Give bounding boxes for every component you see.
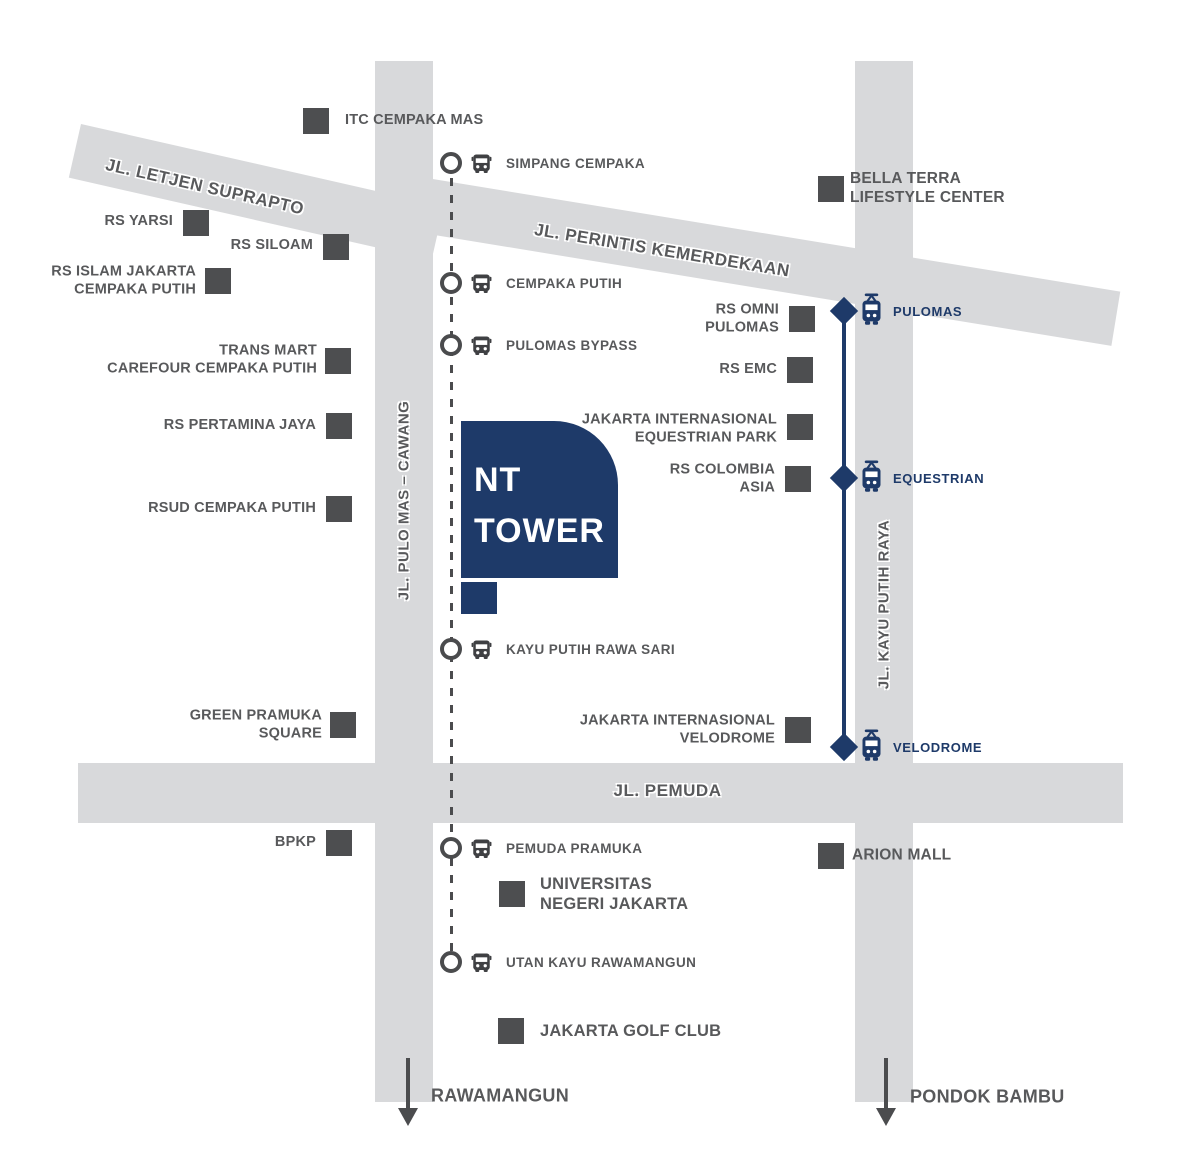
bus-stop-kayu-putih-rawa-sari: KAYU PUTIH RAWA SARI [440, 636, 675, 662]
landmark-marker-rs-omni-pulomas [789, 306, 815, 332]
bus-icon [470, 951, 493, 974]
landmark-marker-rs-colombia-asia [785, 466, 811, 492]
landmark-label-line: SQUARE [190, 725, 322, 743]
station-label: PULOMAS [893, 304, 962, 319]
bus-stop-pemuda-pramuka: PEMUDA PRAMUKA [440, 835, 642, 861]
landmark-marker-bpkp [326, 830, 352, 856]
landmark-marker-rsud-cempaka-putih [326, 496, 352, 522]
landmark-rs-omni-pulomas: RS OMNI PULOMAS [705, 301, 779, 336]
station-diamond-marker [830, 733, 858, 761]
destination-pondok-bambu: PONDOK BAMBU [910, 1087, 1065, 1108]
nt-tower-annex-block [461, 582, 497, 614]
landmark-trans-mart: TRANS MART CAREFOUR CEMPAKA PUTIH [107, 342, 317, 377]
station-diamond-marker [830, 297, 858, 325]
arrow-head-rawamangun [398, 1108, 418, 1126]
landmark-marker-equestrian-park [787, 414, 813, 440]
landmark-rsud-cempaka-putih: RSUD CEMPAKA PUTIH [148, 500, 316, 518]
bus-stop-circle [440, 272, 462, 294]
landmark-label-line: LIFESTYLE CENTER [850, 189, 1005, 208]
landmark-jakarta-golf-club: JAKARTA GOLF CLUB [540, 1021, 721, 1041]
lrt-line [842, 311, 846, 747]
tram-icon [858, 729, 885, 765]
landmark-label-line: UNIVERSITAS [540, 874, 688, 894]
landmark-marker-velodrome [785, 717, 811, 743]
landmark-label-line: JAKARTA INTERNASIONAL [580, 712, 775, 730]
landmark-label-line: PULOMAS [705, 319, 779, 337]
landmark-rs-emc: RS EMC [719, 361, 777, 379]
station-label: VELODROME [893, 740, 982, 755]
landmark-itc-cempaka-mas: ITC CEMPAKA MAS [345, 112, 483, 130]
landmark-marker-rs-emc [787, 357, 813, 383]
nt-tower-location-map: JL. LETJEN SUPRAPTO JL. PERINTIS KEMERDE… [0, 0, 1200, 1162]
bus-stop-label: PEMUDA PRAMUKA [506, 841, 642, 856]
landmark-label-line: GREEN PRAMUKA [190, 707, 322, 725]
tram-icon [858, 460, 885, 496]
landmark-universitas-negeri-jakarta: UNIVERSITAS NEGERI JAKARTA [540, 874, 688, 914]
landmark-arion-mall: ARION MALL [852, 847, 951, 866]
landmark-green-pramuka-square: GREEN PRAMUKA SQUARE [190, 707, 322, 742]
landmark-marker-bella-terra [818, 176, 844, 202]
landmark-label-line: RS SILOAM [231, 237, 313, 255]
landmark-equestrian-park: JAKARTA INTERNASIONAL EQUESTRIAN PARK [582, 411, 777, 446]
landmark-velodrome-park: JAKARTA INTERNASIONAL VELODROME [580, 712, 775, 747]
landmark-label-line: CEMPAKA PUTIH [51, 281, 196, 299]
bus-stop-circle [440, 152, 462, 174]
bus-stop-circle [440, 638, 462, 660]
landmark-label-line: RS YARSI [105, 213, 174, 231]
landmark-rs-yarsi: RS YARSI [105, 213, 174, 231]
destination-rawamangun: RAWAMANGUN [431, 1086, 569, 1107]
landmark-rs-islam-jakarta: RS ISLAM JAKARTA CEMPAKA PUTIH [51, 263, 196, 298]
bus-icon [470, 837, 493, 860]
landmark-bpkp: BPKP [275, 834, 316, 852]
bus-icon [470, 152, 493, 175]
bus-stop-label: PULOMAS BYPASS [506, 338, 637, 353]
landmark-marker-rs-yarsi [183, 210, 209, 236]
road-label-kayu-putih-raya: JL. KAYU PUTIH RAYA [876, 495, 893, 715]
nt-tower-label: NT TOWER [474, 455, 605, 557]
landmark-marker-trans-mart [325, 348, 351, 374]
bus-stop-circle [440, 837, 462, 859]
tram-icon [858, 293, 885, 329]
bus-stop-label: KAYU PUTIH RAWA SARI [506, 642, 675, 657]
bus-stop-cempaka-putih: CEMPAKA PUTIH [440, 270, 622, 296]
landmark-marker-itc-cempaka-mas [303, 108, 329, 134]
landmark-label-line: VELODROME [580, 730, 775, 748]
landmark-label-line: CAREFOUR CEMPAKA PUTIH [107, 360, 317, 378]
nt-tower-label-line1: NT [474, 455, 605, 506]
landmark-label-line: EQUESTRIAN PARK [582, 429, 777, 447]
landmark-marker-green-pramuka-square [330, 712, 356, 738]
lrt-station-velodrome: VELODROME [834, 729, 982, 765]
arrow-head-pondok-bambu [876, 1108, 896, 1126]
landmark-label-line: RS PERTAMINA JAYA [164, 417, 316, 435]
bus-icon [470, 272, 493, 295]
landmark-label-line: RS ISLAM JAKARTA [51, 263, 196, 281]
bus-stop-circle [440, 334, 462, 356]
landmark-label-line: NEGERI JAKARTA [540, 894, 688, 914]
landmark-label-line: RS COLOMBIA [670, 461, 775, 479]
station-label: EQUESTRIAN [893, 471, 984, 486]
nt-tower-label-line2: TOWER [474, 506, 605, 557]
landmark-label-line: ASIA [670, 479, 775, 497]
landmark-rs-siloam: RS SILOAM [231, 237, 313, 255]
bus-stop-label: SIMPANG CEMPAKA [506, 156, 645, 171]
arrow-pondok-bambu [884, 1058, 888, 1110]
landmark-rs-pertamina-jaya: RS PERTAMINA JAYA [164, 417, 316, 435]
bus-icon [470, 334, 493, 357]
landmark-label-line: BELLA TERRA [850, 170, 1005, 189]
bus-icon [470, 638, 493, 661]
landmark-label-line: ARION MALL [852, 847, 951, 866]
landmark-label-line: RS EMC [719, 361, 777, 379]
landmark-marker-universitas-negeri-jakarta [499, 881, 525, 907]
bus-stop-label: CEMPAKA PUTIH [506, 276, 622, 291]
landmark-marker-rs-siloam [323, 234, 349, 260]
station-diamond-marker [830, 464, 858, 492]
landmark-label-line: JAKARTA GOLF CLUB [540, 1021, 721, 1041]
bus-stop-pulomas-bypass: PULOMAS BYPASS [440, 332, 637, 358]
arrow-rawamangun [406, 1058, 410, 1110]
landmark-marker-jakarta-golf-club [498, 1018, 524, 1044]
landmark-bella-terra: BELLA TERRA LIFESTYLE CENTER [850, 170, 1005, 208]
landmark-label-line: JAKARTA INTERNASIONAL [582, 411, 777, 429]
landmark-label-line: BPKP [275, 834, 316, 852]
landmark-label-line: ITC CEMPAKA MAS [345, 112, 483, 130]
bus-stop-utan-kayu-rawamangun: UTAN KAYU RAWAMANGUN [440, 949, 696, 975]
landmark-label-line: TRANS MART [107, 342, 317, 360]
bus-stop-label: UTAN KAYU RAWAMANGUN [506, 955, 696, 970]
road-label-pulo-mas-cawang: JL. PULO MAS – CAWANG [396, 351, 413, 651]
bus-stop-circle [440, 951, 462, 973]
landmark-marker-rs-islam-jakarta [205, 268, 231, 294]
landmark-label-line: RS OMNI [705, 301, 779, 319]
landmark-rs-colombia-asia: RS COLOMBIA ASIA [670, 461, 775, 496]
lrt-station-equestrian: EQUESTRIAN [834, 460, 984, 496]
bus-stop-simpang-cempaka: SIMPANG CEMPAKA [440, 150, 645, 176]
landmark-label-line: RSUD CEMPAKA PUTIH [148, 500, 316, 518]
landmark-marker-arion-mall [818, 843, 844, 869]
landmark-marker-rs-pertamina-jaya [326, 413, 352, 439]
road-label-pemuda: JL. PEMUDA [590, 781, 745, 801]
lrt-station-pulomas: PULOMAS [834, 293, 962, 329]
